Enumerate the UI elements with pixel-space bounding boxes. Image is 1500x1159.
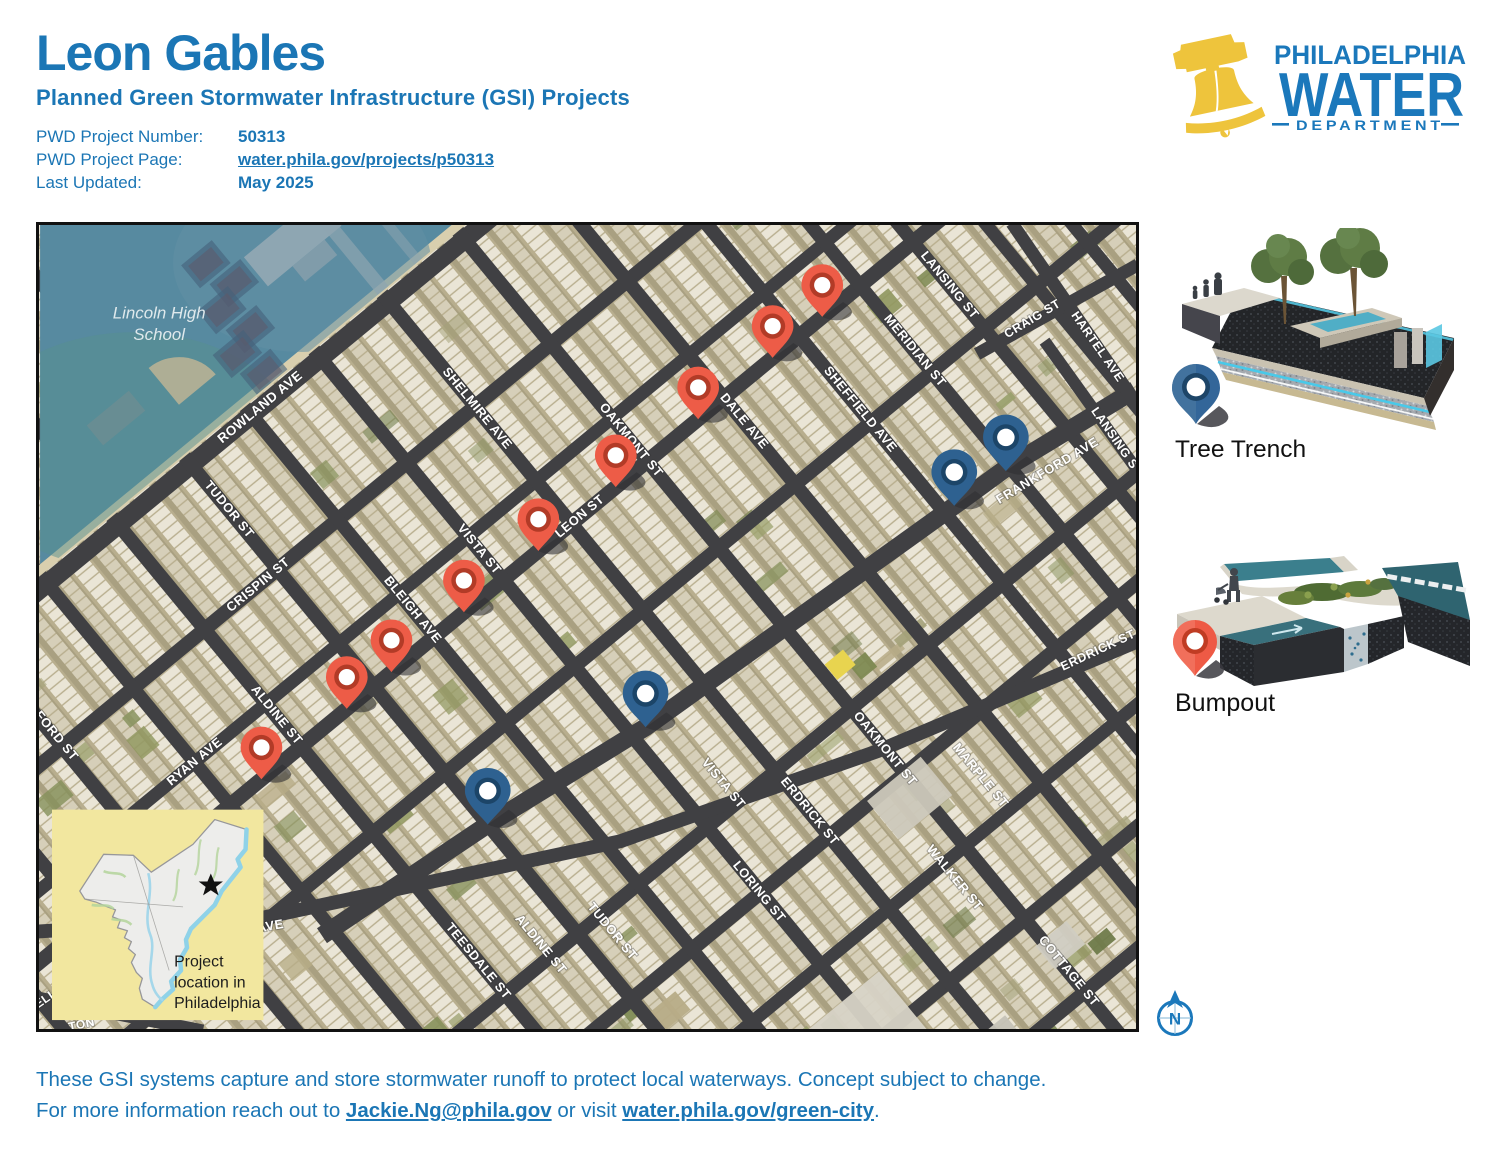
svg-text:N: N xyxy=(1169,1010,1181,1029)
svg-text:Project: Project xyxy=(174,953,224,970)
svg-text:Philadelphia: Philadelphia xyxy=(174,995,261,1012)
svg-text:DEPARTMENT: DEPARTMENT xyxy=(1296,118,1444,133)
svg-text:Lincoln High: Lincoln High xyxy=(113,303,206,322)
svg-text:School: School xyxy=(133,325,186,344)
svg-text:location in: location in xyxy=(174,974,245,991)
